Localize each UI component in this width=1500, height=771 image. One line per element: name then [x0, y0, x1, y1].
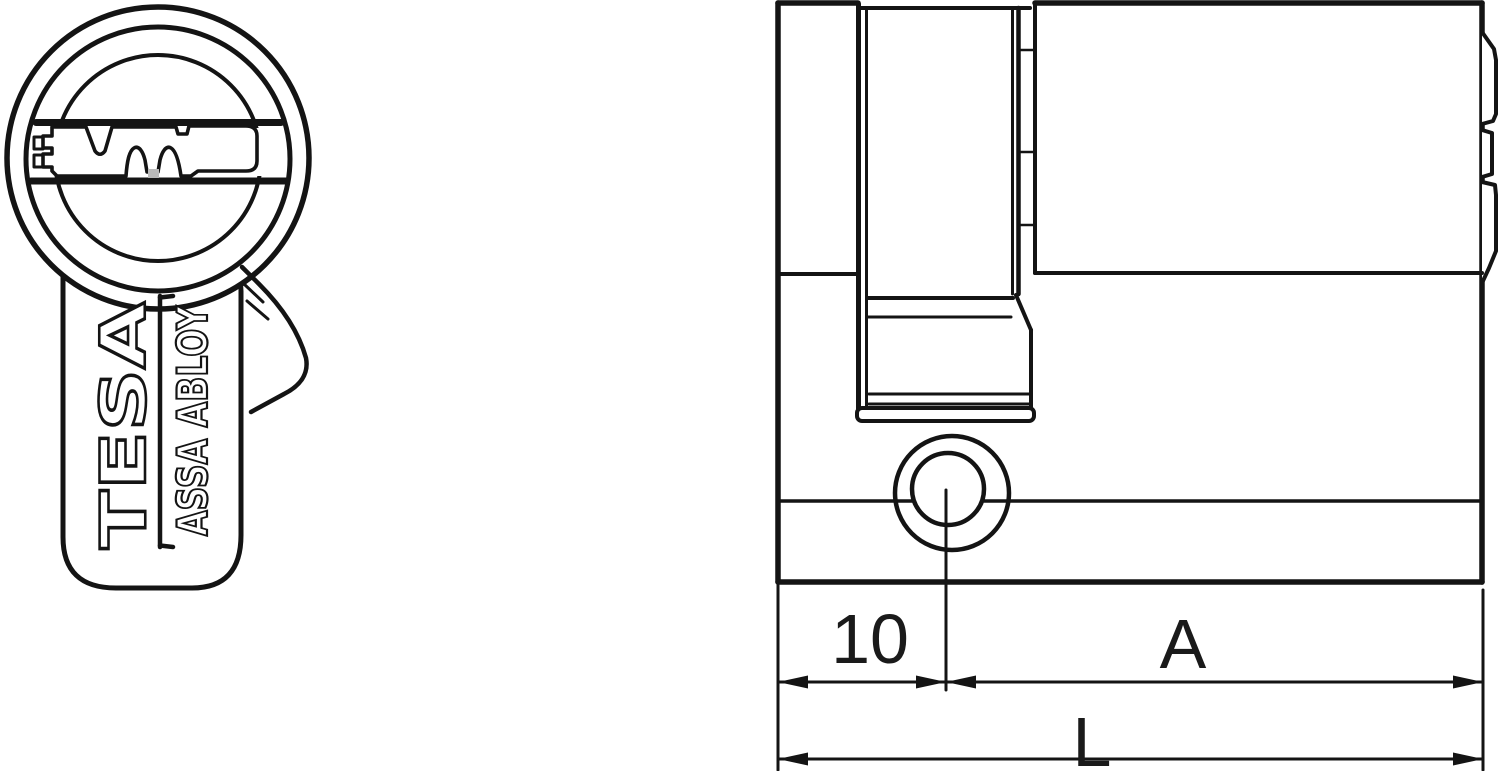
cam-flag-side [857, 295, 1034, 421]
dim-label-L: L [1073, 703, 1112, 771]
arrow-10-right [916, 676, 946, 689]
front-face-plug-profile [1482, 32, 1496, 283]
body-outline [778, 3, 1482, 582]
brand-secondary-text: ASSA ABLOY [168, 306, 217, 536]
cam-flag-tip [857, 408, 1034, 421]
plug-tab-upper [1482, 32, 1496, 124]
key-profile [43, 126, 257, 176]
dim-label-A: A [1160, 605, 1207, 683]
dimension-arrows [778, 676, 1483, 766]
cylinder-drawing: TESA ASSA ABLOY [0, 0, 1500, 771]
arrow-L-left [778, 753, 808, 766]
plug-keyway-step [1482, 130, 1492, 177]
cam-ring [858, 3, 1035, 416]
arrow-10-left [778, 676, 808, 689]
drawing-canvas: TESA ASSA ABLOY [0, 0, 1500, 771]
cam-flag [242, 267, 307, 412]
arrow-L-right [1453, 753, 1483, 766]
arrow-A-left [946, 676, 976, 689]
dim-label-10: 10 [831, 600, 909, 678]
screw-hole-inner [912, 453, 984, 525]
arrow-A-right [1453, 676, 1483, 689]
brand-primary-text: TESA [87, 302, 160, 549]
plug-tab-lower [1482, 182, 1496, 283]
key-valley-shade [148, 169, 159, 178]
